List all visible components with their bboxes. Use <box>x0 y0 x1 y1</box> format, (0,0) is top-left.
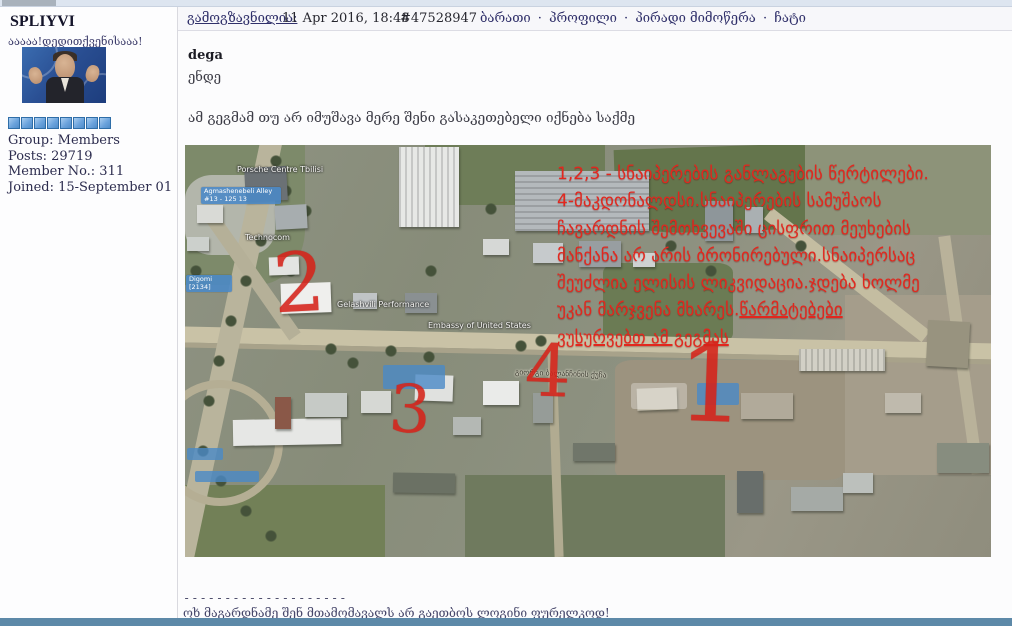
rating-squares <box>8 117 111 129</box>
map-red-annotation-line: მანქანა არ არის ბრონირებული.სნაიპერსაც <box>557 243 985 270</box>
rating-square <box>73 117 85 129</box>
rating-square <box>34 117 46 129</box>
rating-square <box>47 117 59 129</box>
map-building <box>483 239 509 255</box>
map-red-annotation: 1,2,3 - სნაიპერების განლაგების წერტილები… <box>557 161 985 352</box>
annotation-text: 1,2,3 - სნაიპერების განლაგების წერტილები… <box>557 164 929 184</box>
user-field: Member No.: 311 <box>8 164 172 180</box>
quote-author: dega <box>188 48 223 63</box>
map-decor-shape <box>187 448 223 460</box>
map-decor-shape <box>213 355 225 367</box>
avatar[interactable] <box>22 47 106 103</box>
map-place-label: Porsche Centre Tbilisi <box>237 165 323 174</box>
top-strip <box>0 0 1012 7</box>
map-building <box>791 487 843 511</box>
rating-square <box>60 117 72 129</box>
user-field: Joined: 15-September 01 <box>8 180 172 196</box>
satellite-map-image[interactable]: Porsche Centre TbilisiTechnocomGelashvil… <box>185 145 991 557</box>
rating-square <box>86 117 98 129</box>
map-building <box>483 381 519 405</box>
map-decor-shape <box>385 345 397 357</box>
quote-text: ენდე <box>188 70 221 85</box>
link-separator: · <box>617 11 635 26</box>
header-link[interactable]: ბარათი <box>480 11 531 26</box>
map-decor-shape <box>325 343 337 355</box>
map-building <box>741 393 793 419</box>
map-building <box>799 349 885 371</box>
map-decor-shape <box>485 203 497 215</box>
link-separator: · <box>756 11 774 26</box>
map-building <box>275 397 291 429</box>
user-info-fields: Group: MembersPosts: 29719Member No.: 31… <box>8 133 172 195</box>
signature-divider: -------------------- <box>183 591 348 605</box>
map-decor-shape <box>465 475 725 557</box>
map-building <box>305 393 347 417</box>
rating-square <box>99 117 111 129</box>
post-timestamp: 11 Apr 2016, 18:48 <box>282 11 410 26</box>
post-id: #47528947 <box>400 11 477 26</box>
map-building <box>361 391 391 413</box>
avatar-art <box>55 54 75 79</box>
map-place-label: Gelashvili Performance <box>337 300 429 309</box>
map-building <box>453 417 481 435</box>
rating-square <box>21 117 33 129</box>
map-decor-shape <box>225 315 237 327</box>
map-building <box>197 205 223 223</box>
map-building <box>937 443 989 473</box>
map-building <box>737 471 763 513</box>
user-sidebar: SPLIYVI ააააა!დედითქვენისააა! Group: Mem… <box>0 7 178 618</box>
map-decor-shape <box>425 265 437 277</box>
header-link[interactable]: ჩატი <box>774 11 806 26</box>
next-section-bar <box>0 618 1012 626</box>
posted-date-link[interactable]: გამოგზავნილია: <box>187 11 297 26</box>
map-decor-shape <box>240 505 252 517</box>
map-red-annotation-line: ჩავარდნის შემთხვევაში ცისფრით მეუხების <box>557 216 985 243</box>
annotation-text: 4-მაკდონალდსი.სნაიპერების სამუშაოს <box>557 191 881 211</box>
map-decor-shape <box>240 275 252 287</box>
map-red-annotation-line: 4-მაკდონალდსი.სნაიპერების სამუშაოს <box>557 188 985 215</box>
user-field: Group: Members <box>8 133 172 149</box>
map-decor-shape <box>203 395 215 407</box>
map-number-annotation: 3 <box>387 376 432 444</box>
annotation-text: ჩავარდნის შემთხვევაში ცისფრით მეუხების <box>557 219 911 239</box>
map-place-label: Embassy of United States <box>428 321 531 330</box>
map-building <box>843 473 873 493</box>
link-separator: · <box>531 11 549 26</box>
user-field: Posts: 29719 <box>8 149 172 165</box>
annotation-text: უკან მარჯვენა მხარეს. <box>557 300 739 320</box>
header-link[interactable]: პირადი მიმოწერა <box>635 11 756 26</box>
post-text: ამ გეგმამ თუ არ იმუშავა მერე შენი გასაკე… <box>188 110 635 126</box>
top-tab <box>2 0 56 6</box>
map-decor-shape <box>265 530 277 542</box>
map-number-annotation: 2 <box>271 242 327 327</box>
map-red-annotation-line: 1,2,3 - სნაიპერების განლაგების წერტილები… <box>557 161 985 188</box>
post-header: გამოგზავნილია: 11 Apr 2016, 18:48 #47528… <box>178 7 1012 31</box>
map-building <box>274 204 307 230</box>
annotation-text: მანქანა არ არის ბრონირებული.სნაიპერსაც <box>557 246 915 266</box>
map-number-annotation: 1 <box>675 330 747 440</box>
post-column: გამოგზავნილია: 11 Apr 2016, 18:48 #47528… <box>178 7 1012 618</box>
annotation-text: შეუძლია ელისის ლიკვიდაცია.ჯდება ხოლმე <box>557 273 920 293</box>
map-building <box>187 237 209 251</box>
map-decor-shape <box>423 351 435 363</box>
map-decor-shape <box>195 471 259 482</box>
map-address-label: Agmashenebeli Alley #13 - 125 13 <box>201 187 281 204</box>
rating-square <box>8 117 20 129</box>
username-link[interactable]: SPLIYVI <box>10 13 75 31</box>
map-red-annotation-line: შეუძლია ელისის ლიკვიდაცია.ჯდება ხოლმე <box>557 270 985 297</box>
map-building <box>399 147 459 227</box>
forum-post-page: SPLIYVI ააააა!დედითქვენისააა! Group: Mem… <box>0 0 1012 626</box>
map-decor-shape <box>347 357 359 369</box>
map-number-annotation: 4 <box>524 334 572 408</box>
map-address-label: Digomi [2134] <box>186 275 232 292</box>
header-link[interactable]: პროფილი <box>549 11 617 26</box>
map-building <box>393 472 455 493</box>
map-red-annotation-line: ვუსურვებთ ამ გეგმას <box>557 325 985 352</box>
map-building <box>885 393 921 413</box>
annotation-text-underlined: წარმატებები <box>739 300 842 320</box>
header-links: ბარათი · პროფილი · პირადი მიმოწერა · ჩატ… <box>480 11 806 26</box>
map-red-annotation-line: უკან მარჯვენა მხარეს.წარმატებები <box>557 297 985 324</box>
map-building <box>573 443 615 461</box>
